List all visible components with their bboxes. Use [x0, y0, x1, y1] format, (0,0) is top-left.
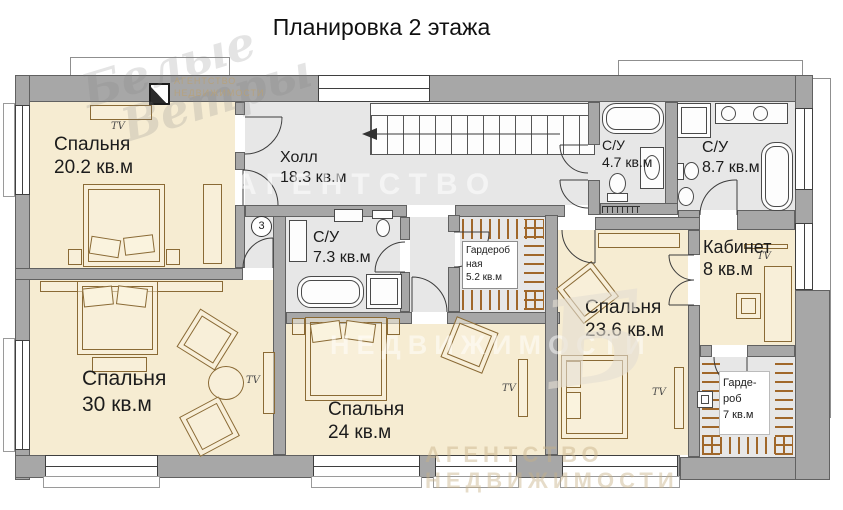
door-arc: [669, 280, 694, 305]
door-arc: [700, 180, 737, 215]
tv-label: TV: [111, 121, 125, 132]
room-area: 8 кв.м: [703, 259, 771, 281]
door-arc: [560, 145, 588, 173]
stair-arrow: [362, 128, 377, 140]
door-arc: [669, 255, 694, 280]
room-name: ная: [466, 258, 514, 272]
floor-plan: Планировка 2 этажа: [0, 0, 843, 510]
door-arc: [412, 277, 447, 312]
room-area: 30 кв.м: [82, 392, 166, 418]
room-area: 7 кв.м: [723, 408, 766, 424]
door-arc: [243, 170, 278, 205]
room-area: 5.2 кв.м: [466, 271, 514, 285]
room-name: Кабинет: [703, 237, 771, 259]
room-area: 20.2 кв.м: [54, 156, 133, 179]
room-area: 23.6 кв.м: [585, 319, 664, 342]
room-name: Спальня: [585, 296, 664, 319]
room-area: 8.7 кв.м: [702, 158, 760, 178]
room-area: 4.7 кв.м: [602, 154, 652, 171]
room-name: Холл: [280, 148, 347, 168]
label-bedroom-236: Спальня 23.6 кв.м: [585, 296, 664, 342]
label-office: Кабинет 8 кв.м: [703, 237, 771, 281]
room-name: Гардероб: [466, 244, 514, 258]
room-area: 24 кв.м: [328, 421, 404, 444]
label-bath-73: С/У 7.3 кв.м: [313, 228, 371, 267]
tv-label: TV: [502, 383, 516, 394]
door-arc: [562, 230, 595, 263]
tv-label: TV: [652, 387, 666, 398]
tv-label: TV: [246, 375, 260, 386]
label-bedroom-30: Спальня 30 кв.м: [82, 366, 166, 417]
label-dressing-52: Гардероб ная 5.2 кв.м: [462, 241, 518, 289]
room-name: С/У: [602, 137, 652, 154]
room-name: роб: [723, 392, 766, 408]
label-dressing-7: Гарде- роб 7 кв.м: [719, 371, 770, 435]
label-bath-87: С/У 8.7 кв.м: [702, 138, 760, 177]
label-bedroom-20: Спальня 20.2 кв.м: [54, 133, 133, 179]
door-number-badge: 3: [251, 216, 272, 237]
room-name: Спальня: [54, 133, 133, 156]
vent-shaft-icon: [149, 83, 170, 105]
room-name: Спальня: [82, 366, 166, 392]
room-name: С/У: [702, 138, 760, 158]
door-arc: [245, 117, 282, 154]
label-bath-47: С/У 4.7 кв.м: [602, 137, 652, 171]
room-name: Спальня: [328, 398, 404, 421]
label-bedroom-24: Спальня 24 кв.м: [328, 398, 404, 444]
room-area: 7.3 кв.м: [313, 248, 371, 268]
room-name: С/У: [313, 228, 371, 248]
door-arc: [243, 238, 273, 268]
door-arc: [375, 242, 405, 272]
door-arc: [560, 180, 588, 208]
label-hall: Холл 18.3 кв.м: [280, 148, 347, 187]
room-area: 18.3 кв.м: [280, 168, 347, 188]
room-name: Гарде-: [723, 376, 766, 392]
